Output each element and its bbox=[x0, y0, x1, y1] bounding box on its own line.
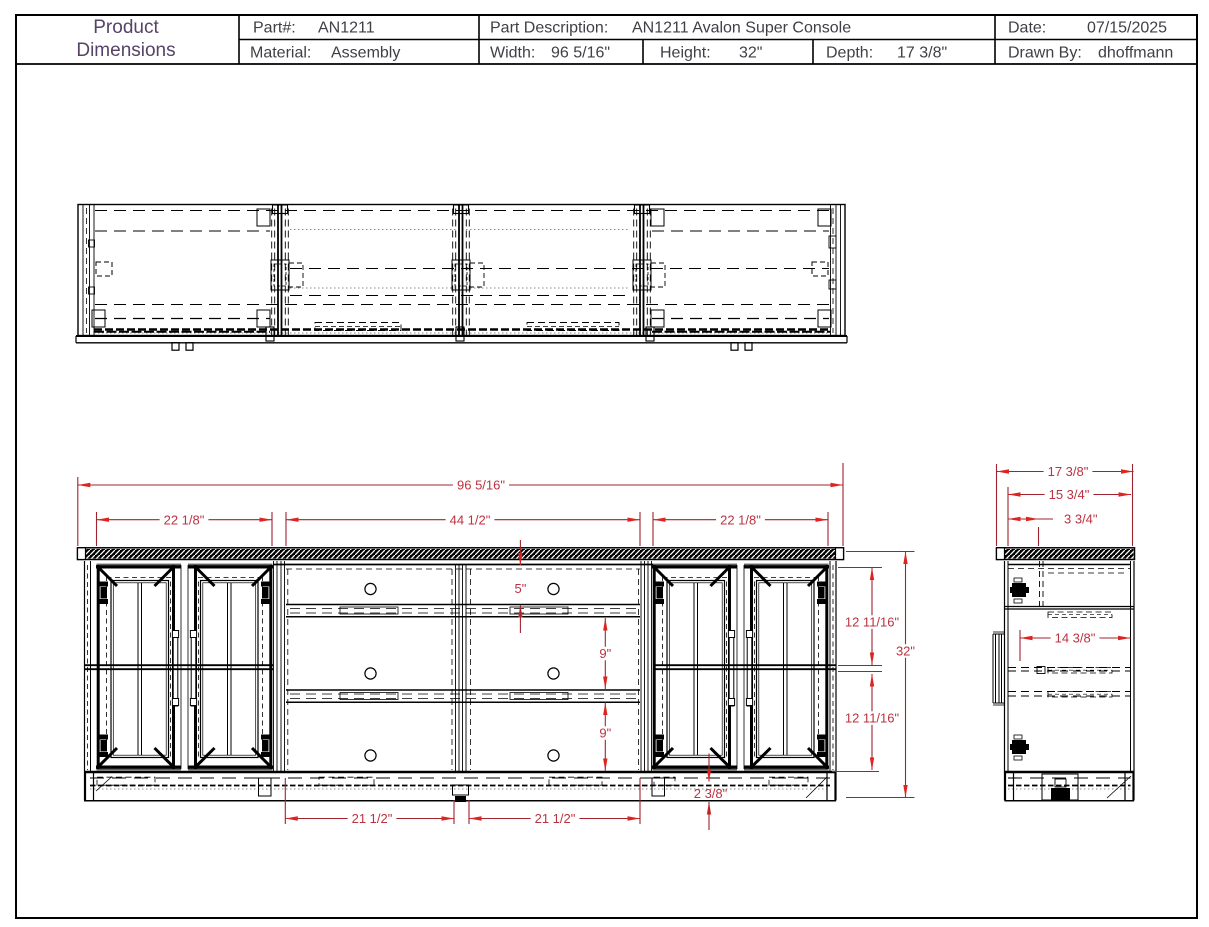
svg-text:22 1/8": 22 1/8" bbox=[164, 512, 205, 527]
svg-text:14 3/8": 14 3/8" bbox=[1055, 631, 1096, 646]
svg-text:Height:: Height: bbox=[660, 45, 711, 62]
svg-text:5": 5" bbox=[514, 581, 526, 596]
svg-text:07/15/2025: 07/15/2025 bbox=[1087, 20, 1167, 37]
svg-text:15 3/4": 15 3/4" bbox=[1049, 487, 1090, 502]
svg-text:Part Description:: Part Description: bbox=[490, 20, 608, 37]
svg-text:22 1/8": 22 1/8" bbox=[720, 512, 761, 527]
svg-text:32": 32" bbox=[739, 45, 762, 62]
svg-text:Date:: Date: bbox=[1008, 20, 1046, 37]
svg-text:44 1/2": 44 1/2" bbox=[450, 512, 491, 527]
svg-text:17 3/8": 17 3/8" bbox=[1048, 464, 1089, 479]
svg-text:3 3/4": 3 3/4" bbox=[1064, 512, 1098, 527]
svg-text:AN1211 Avalon Super Console: AN1211 Avalon Super Console bbox=[632, 20, 851, 37]
svg-text:Dimensions: Dimensions bbox=[76, 40, 175, 61]
svg-text:96 5/16": 96 5/16" bbox=[551, 45, 610, 62]
svg-text:dhoffmann: dhoffmann bbox=[1098, 45, 1173, 62]
svg-text:Product: Product bbox=[93, 17, 159, 38]
svg-text:21 1/2": 21 1/2" bbox=[352, 811, 393, 826]
svg-text:Assembly: Assembly bbox=[331, 45, 400, 62]
svg-text:AN1211: AN1211 bbox=[318, 20, 375, 37]
svg-text:96 5/16": 96 5/16" bbox=[457, 478, 505, 493]
svg-text:9": 9" bbox=[599, 726, 611, 741]
svg-text:Width:: Width: bbox=[490, 45, 535, 62]
svg-text:12 11/16": 12 11/16" bbox=[845, 615, 900, 630]
svg-text:21 1/2": 21 1/2" bbox=[535, 811, 576, 826]
svg-text:17 3/8": 17 3/8" bbox=[897, 45, 947, 62]
svg-text:Part#:: Part#: bbox=[253, 20, 296, 37]
svg-text:9": 9" bbox=[599, 646, 611, 661]
svg-text:32": 32" bbox=[896, 644, 915, 659]
svg-text:Material:: Material: bbox=[250, 45, 311, 62]
svg-text:2 3/8": 2 3/8" bbox=[694, 786, 728, 801]
svg-text:Depth:: Depth: bbox=[826, 45, 873, 62]
svg-text:Drawn By:: Drawn By: bbox=[1008, 45, 1082, 62]
svg-text:12 11/16": 12 11/16" bbox=[845, 711, 900, 726]
